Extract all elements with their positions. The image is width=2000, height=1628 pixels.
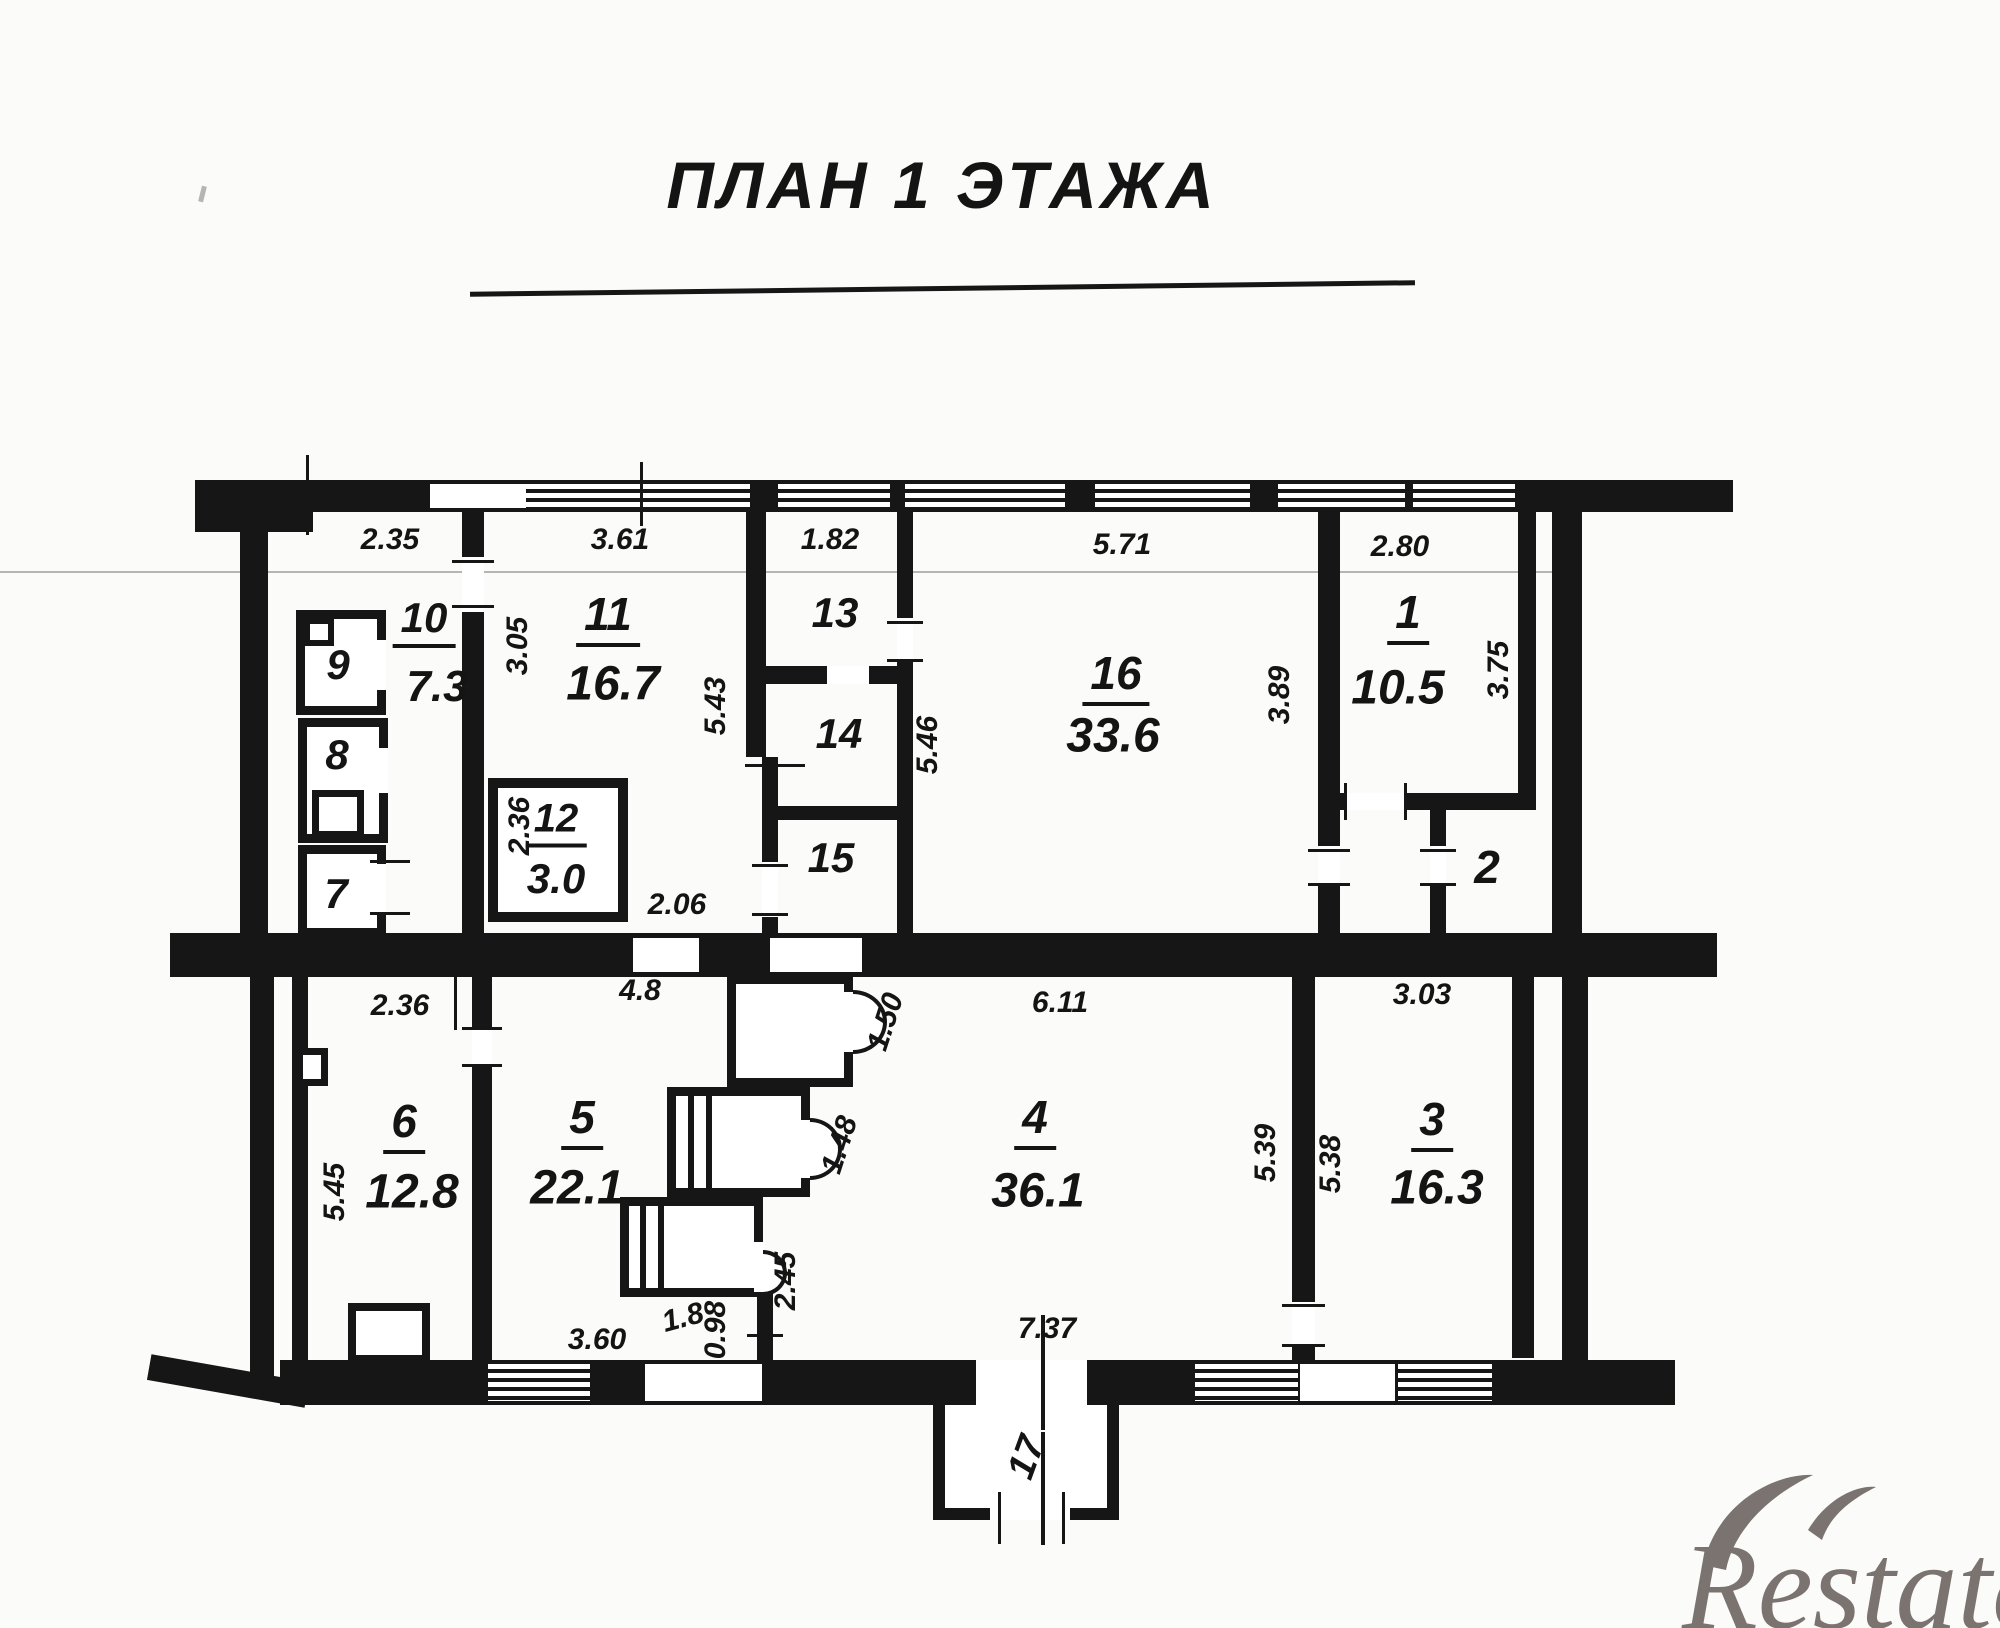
door-opening [1347, 793, 1407, 810]
dimension-label: 5.43 [699, 677, 733, 735]
room-area: 22.1 [530, 1161, 623, 1216]
window [778, 480, 890, 512]
door-opening [1292, 1302, 1315, 1346]
room-area: 7.3 [406, 662, 467, 712]
wall-middle [170, 933, 1717, 977]
door-opening [844, 992, 853, 1052]
room-number: 3 [1411, 1092, 1453, 1152]
room-area: 10.5 [1351, 661, 1444, 716]
dimension-label: 2.36 [503, 797, 537, 855]
door-tick [452, 560, 494, 563]
wall-right-lower [1562, 963, 1588, 1363]
door-opening [472, 1029, 492, 1067]
entrance-opening [976, 1360, 1087, 1405]
door-tick [747, 1334, 783, 1337]
dimension-label: 2.80 [1371, 530, 1429, 564]
dimension-label: 5.71 [1093, 528, 1151, 562]
cupboard-box [348, 1303, 430, 1363]
window-opening [645, 1360, 762, 1405]
stair-step-line [706, 1094, 712, 1190]
room-area: 3.0 [527, 855, 585, 903]
door-tick [1308, 883, 1350, 886]
dimension-label: 3.60 [568, 1323, 626, 1357]
dimension-label: 6.11 [1032, 986, 1088, 1020]
door-tick [1420, 883, 1456, 886]
stair-step-line [658, 1204, 664, 1290]
room-number: 5 [561, 1090, 603, 1150]
floor-plan-sheet: ПЛАН 1 ЭТАЖА [0, 0, 2000, 1628]
dimension-label: 2.06 [648, 888, 706, 922]
stray-mark [198, 186, 207, 203]
dimension-label: 7.37 [1018, 1312, 1076, 1346]
door-opening [990, 1508, 1070, 1520]
window [1095, 480, 1250, 512]
room-number: 11 [576, 587, 640, 647]
door-opening [827, 666, 869, 684]
door-tick [1308, 849, 1350, 852]
wall-room3-right [1512, 963, 1534, 1358]
window [526, 480, 750, 512]
window-opening [430, 480, 526, 512]
room-area: 12.8 [365, 1165, 458, 1220]
dimension-label: 2.45 [769, 1252, 803, 1310]
stair-landing-upper [727, 975, 853, 1087]
dimension-label: 3.05 [501, 617, 535, 675]
wall-left-lower [250, 977, 274, 1387]
wall-right-upper [1552, 512, 1582, 963]
door-tick [745, 764, 805, 767]
dimension-label: 3.03 [1393, 978, 1451, 1012]
door-tick [462, 1064, 502, 1067]
door-tick [1282, 1344, 1325, 1347]
wall-niche [296, 1048, 328, 1086]
wall-left-upper [240, 512, 268, 977]
axis-tick [640, 462, 643, 526]
door-tick [887, 659, 923, 662]
room-area: 36.1 [991, 1164, 1084, 1219]
toilet-fixture [312, 790, 364, 838]
door-opening [377, 864, 386, 914]
door-tick [452, 605, 494, 608]
room-number: 13 [804, 589, 867, 639]
room-number: 4 [1014, 1090, 1056, 1150]
room-area: 16.7 [566, 657, 659, 712]
room-number: 15 [800, 834, 863, 884]
door-tick [887, 621, 923, 624]
window-opening [1300, 1360, 1395, 1405]
room-number: 16 [1082, 646, 1149, 706]
door-tick [1420, 849, 1456, 852]
room-number: 2 [1466, 840, 1508, 896]
window [1195, 1360, 1298, 1405]
room-number: 9 [318, 641, 357, 691]
axis-tick [306, 455, 309, 535]
dimension-label: 1.82 [801, 523, 859, 557]
room-area: 16.3 [1390, 1161, 1483, 1216]
dimension-label: 5.39 [1249, 1124, 1283, 1182]
dimension-label: 2.35 [361, 523, 419, 557]
room-number: 8 [317, 731, 356, 781]
wall-room1-right [1518, 512, 1536, 810]
stair-step-line [640, 1204, 646, 1290]
door-tick [1062, 1492, 1065, 1544]
title-underline [470, 280, 1415, 297]
door-opening [1430, 846, 1446, 886]
stair-step-line [688, 1094, 694, 1190]
room-number: 7 [316, 870, 355, 920]
door-tick [1344, 783, 1347, 820]
door-tick [752, 913, 788, 916]
room-area: 33.6 [1066, 709, 1159, 764]
door-opening [377, 640, 386, 690]
dimension-label: 3.89 [1263, 666, 1297, 724]
door-opening [897, 618, 913, 662]
dimension-label: 2.36 [371, 989, 429, 1023]
window [1278, 480, 1405, 512]
door-tick [1282, 1304, 1325, 1307]
door-opening [754, 1242, 763, 1292]
page-title: ПЛАН 1 ЭТАЖА [666, 147, 1217, 223]
watermark-text: Restate [1682, 1516, 2000, 1628]
door-tick [462, 1027, 502, 1030]
door-tick [752, 864, 788, 867]
door-opening [1318, 846, 1340, 886]
axis-tick [454, 955, 457, 1030]
door-tick [370, 912, 410, 915]
dimension-label: 0.98 [699, 1301, 733, 1359]
dimension-label: 4.8 [619, 974, 661, 1008]
door-opening-middle-2 [770, 938, 862, 972]
room-number: 14 [808, 710, 871, 760]
door-opening [762, 862, 778, 917]
wall-room6-left [292, 977, 308, 1362]
room-number: 1 [1387, 585, 1429, 645]
dimension-label: 5.45 [318, 1163, 352, 1221]
room-number: 10 [393, 594, 456, 648]
door-opening [801, 1120, 810, 1178]
door-opening-middle-1 [633, 938, 699, 972]
wall-room11-room13 [746, 512, 766, 757]
dimension-label: 5.38 [1314, 1135, 1348, 1193]
window [905, 480, 1065, 512]
door-tick [998, 1492, 1001, 1544]
window [488, 1360, 590, 1405]
door-opening [462, 557, 484, 612]
dimension-label: 3.61 [591, 523, 649, 557]
door-opening [379, 748, 388, 793]
dimension-label: 5.46 [911, 716, 945, 774]
door-tick [1404, 783, 1407, 820]
room-number: 6 [383, 1094, 425, 1154]
window [1413, 480, 1515, 512]
window [1398, 1360, 1492, 1405]
dimension-label: 3.75 [1482, 641, 1516, 699]
door-tick [370, 860, 410, 863]
wall-room14-room15 [778, 806, 897, 820]
